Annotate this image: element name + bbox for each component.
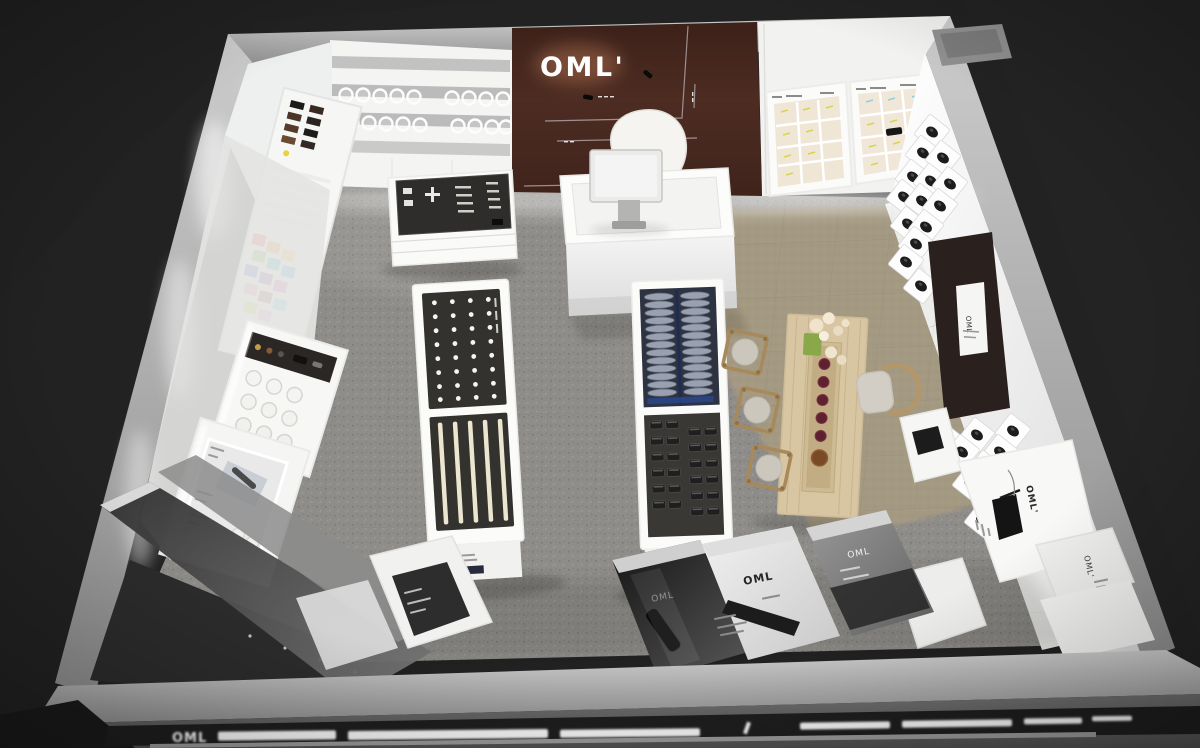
store-render-scene: OML' xyxy=(0,0,1200,748)
render-canvas: OML' xyxy=(0,0,1200,748)
vignette-overlay xyxy=(0,0,1200,748)
